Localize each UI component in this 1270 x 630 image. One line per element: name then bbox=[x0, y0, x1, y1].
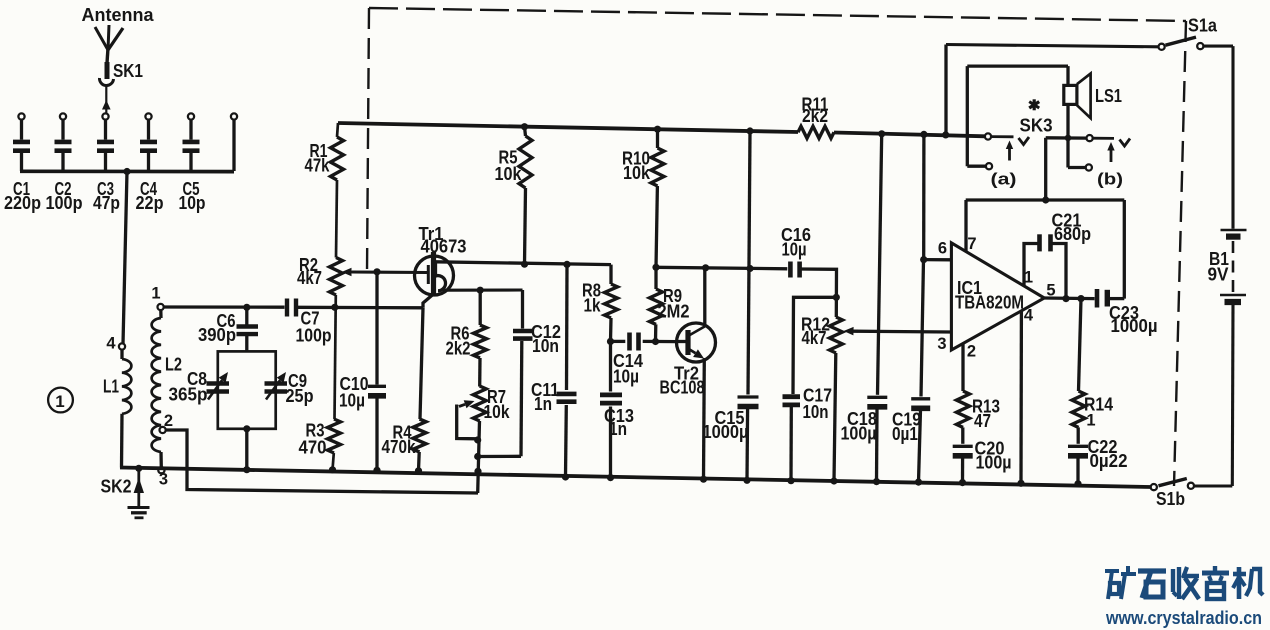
svg-text:100µ: 100µ bbox=[976, 453, 1012, 473]
svg-text:10k: 10k bbox=[495, 164, 523, 184]
svg-text:1n: 1n bbox=[534, 394, 552, 414]
svg-text:100µ: 100µ bbox=[841, 424, 877, 444]
svg-text:4k7: 4k7 bbox=[297, 268, 322, 288]
svg-text:10µ: 10µ bbox=[613, 367, 639, 387]
svg-text:47p: 47p bbox=[93, 193, 120, 213]
svg-text:6: 6 bbox=[938, 239, 947, 257]
svg-text:(b): (b) bbox=[1097, 170, 1123, 188]
svg-text:3: 3 bbox=[937, 335, 946, 353]
svg-text:2k2: 2k2 bbox=[446, 339, 471, 359]
svg-text:10k: 10k bbox=[623, 163, 651, 183]
svg-text:1: 1 bbox=[151, 284, 160, 302]
svg-text:BC108: BC108 bbox=[660, 378, 705, 398]
svg-text:7: 7 bbox=[967, 235, 976, 253]
svg-text:9V: 9V bbox=[1208, 265, 1229, 285]
svg-text:10n: 10n bbox=[803, 402, 829, 422]
svg-text:4: 4 bbox=[1024, 306, 1034, 324]
svg-text:22p: 22p bbox=[136, 193, 164, 213]
svg-text:365p: 365p bbox=[169, 385, 208, 405]
svg-text:2M2: 2M2 bbox=[658, 302, 690, 322]
svg-text:LS1: LS1 bbox=[1095, 86, 1122, 106]
svg-text:(a): (a) bbox=[991, 170, 1017, 188]
svg-text:Antenna: Antenna bbox=[82, 5, 155, 25]
svg-text:100p: 100p bbox=[296, 326, 332, 346]
svg-text:680p: 680p bbox=[1054, 224, 1091, 244]
svg-text:25p: 25p bbox=[286, 386, 314, 406]
svg-text:TBA820M: TBA820M bbox=[955, 293, 1024, 313]
svg-text:10k: 10k bbox=[484, 402, 511, 422]
svg-text:4k7: 4k7 bbox=[802, 328, 827, 348]
svg-text:220p: 220p bbox=[4, 193, 41, 213]
svg-text:100p: 100p bbox=[46, 193, 83, 213]
svg-text:10p: 10p bbox=[179, 193, 206, 213]
svg-text:47k: 47k bbox=[305, 156, 331, 176]
svg-text:2: 2 bbox=[164, 412, 173, 430]
svg-text:0µ22: 0µ22 bbox=[1090, 451, 1128, 471]
svg-text:www.crystalradio.cn: www.crystalradio.cn bbox=[1105, 608, 1262, 628]
svg-text:40673: 40673 bbox=[421, 237, 467, 257]
svg-text:S1a: S1a bbox=[1188, 16, 1218, 36]
svg-text:S1b: S1b bbox=[1156, 489, 1185, 509]
svg-text:SK3: SK3 bbox=[1020, 116, 1053, 136]
svg-text:1: 1 bbox=[55, 392, 64, 411]
svg-text:1000µ: 1000µ bbox=[1111, 316, 1158, 336]
svg-text:10µ: 10µ bbox=[782, 240, 807, 260]
svg-text:1000µ: 1000µ bbox=[703, 422, 749, 442]
svg-text:10µ: 10µ bbox=[339, 391, 365, 411]
svg-text:1: 1 bbox=[1086, 411, 1095, 429]
svg-text:0µ1: 0µ1 bbox=[892, 424, 918, 444]
svg-text:1n: 1n bbox=[609, 419, 627, 439]
svg-text:L2: L2 bbox=[165, 355, 182, 375]
svg-text:47: 47 bbox=[974, 411, 991, 431]
svg-text:2k2: 2k2 bbox=[802, 106, 828, 126]
svg-text:470: 470 bbox=[299, 438, 327, 458]
svg-text:SK1: SK1 bbox=[113, 61, 143, 81]
svg-text:2: 2 bbox=[967, 342, 976, 360]
svg-text:390p: 390p bbox=[198, 325, 236, 345]
svg-text:4: 4 bbox=[106, 334, 116, 352]
svg-text:1k: 1k bbox=[584, 296, 602, 316]
svg-text:L1: L1 bbox=[103, 377, 119, 397]
svg-text:SK2: SK2 bbox=[101, 477, 132, 497]
svg-text:3: 3 bbox=[159, 470, 168, 488]
svg-text:10n: 10n bbox=[532, 336, 559, 356]
svg-text:470k: 470k bbox=[382, 437, 417, 457]
